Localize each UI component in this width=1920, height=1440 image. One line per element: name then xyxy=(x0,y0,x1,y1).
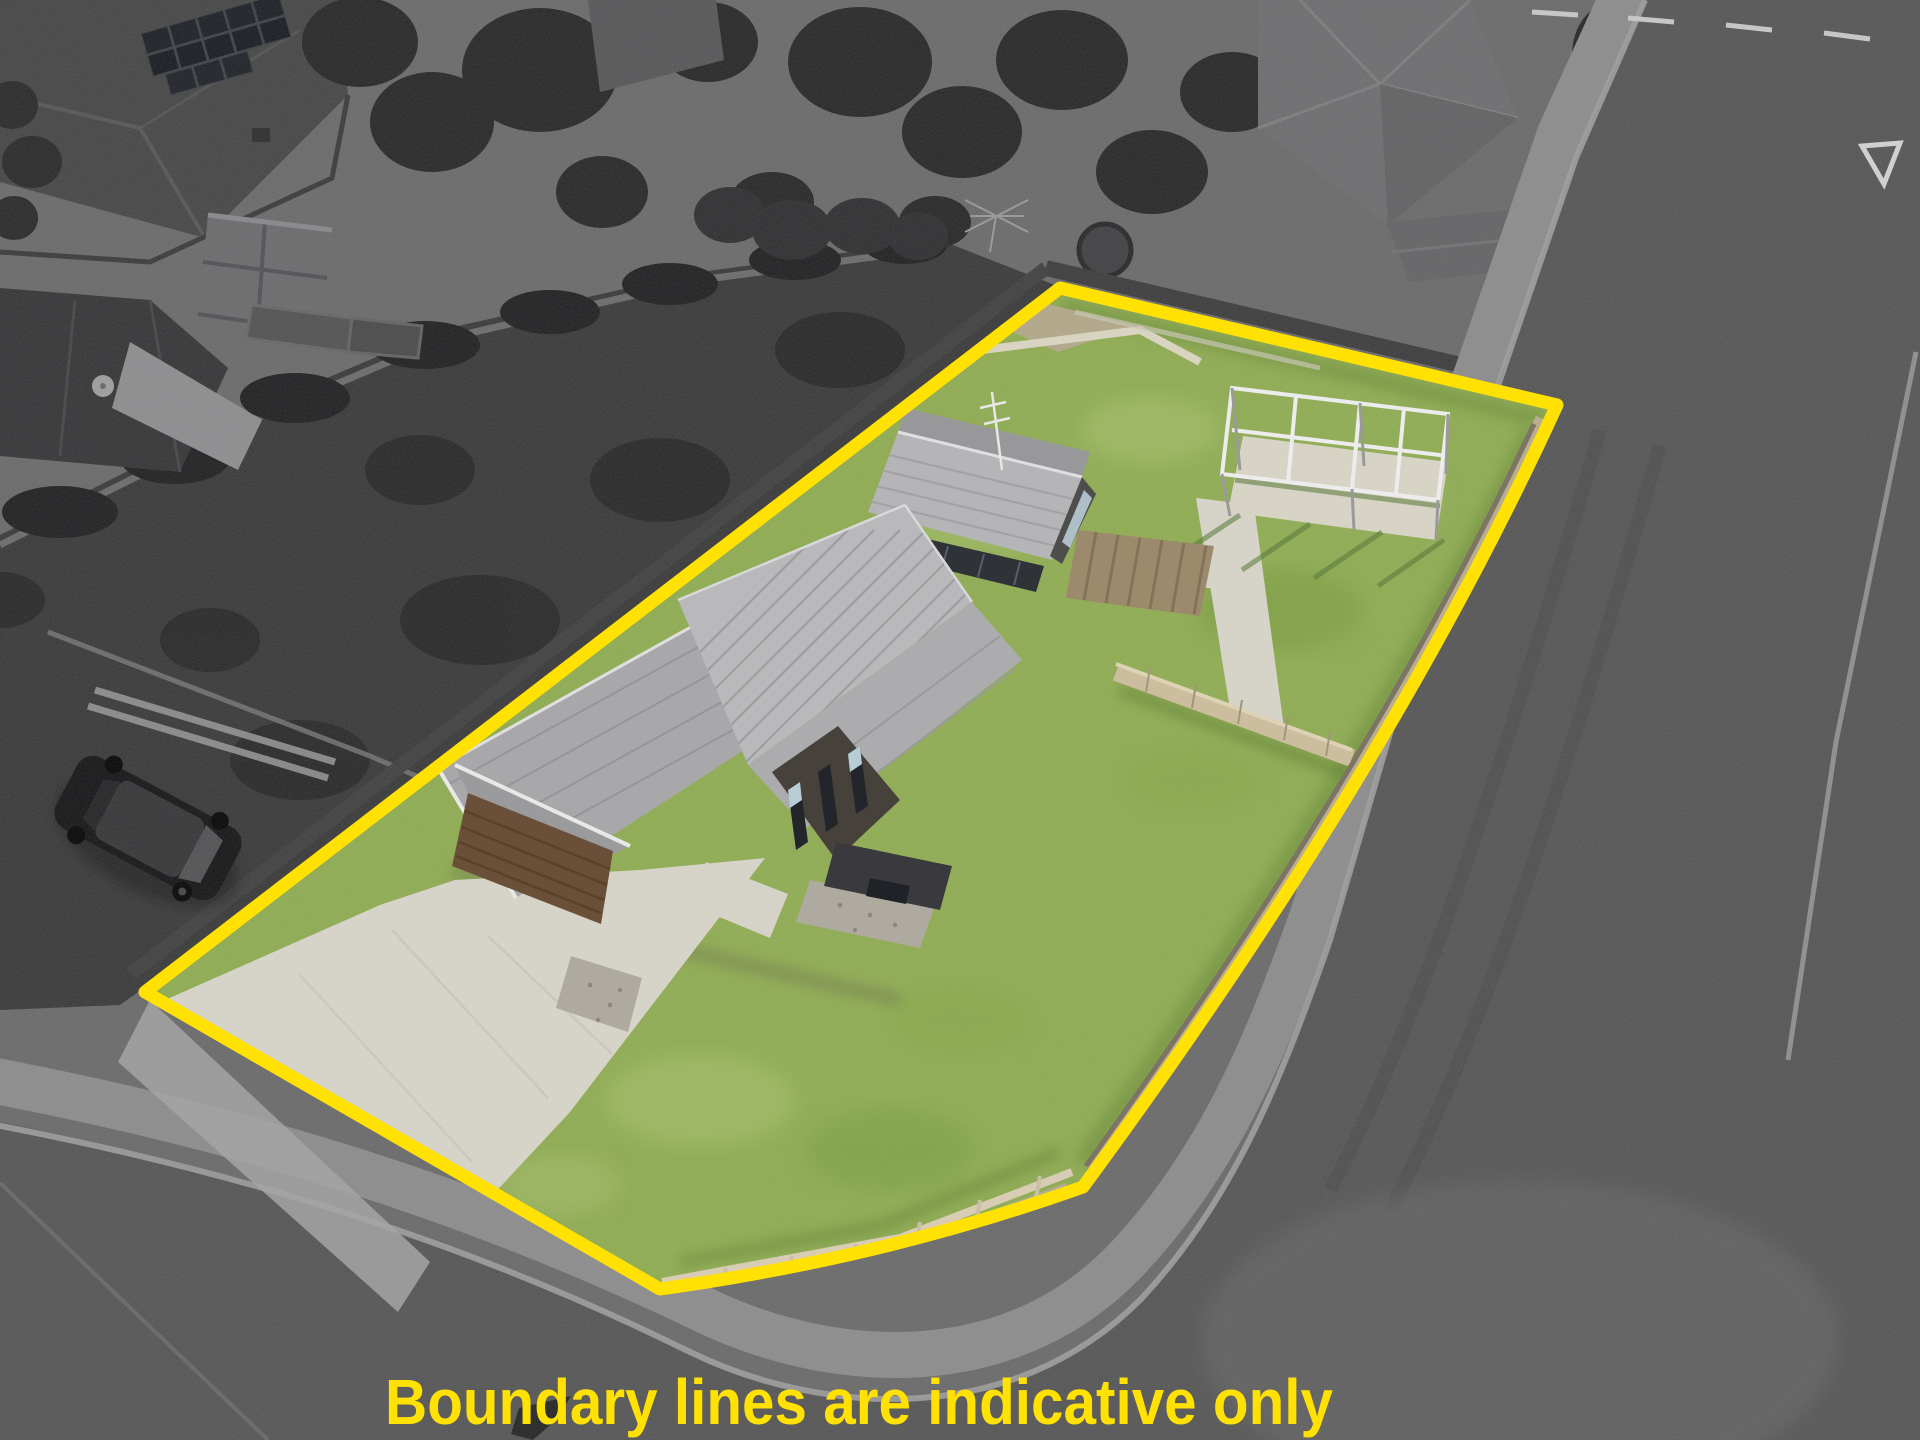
caption-text: Boundary lines are indicative only xyxy=(385,1366,1333,1438)
aerial-photo: Boundary lines are indicative only xyxy=(0,0,1920,1440)
